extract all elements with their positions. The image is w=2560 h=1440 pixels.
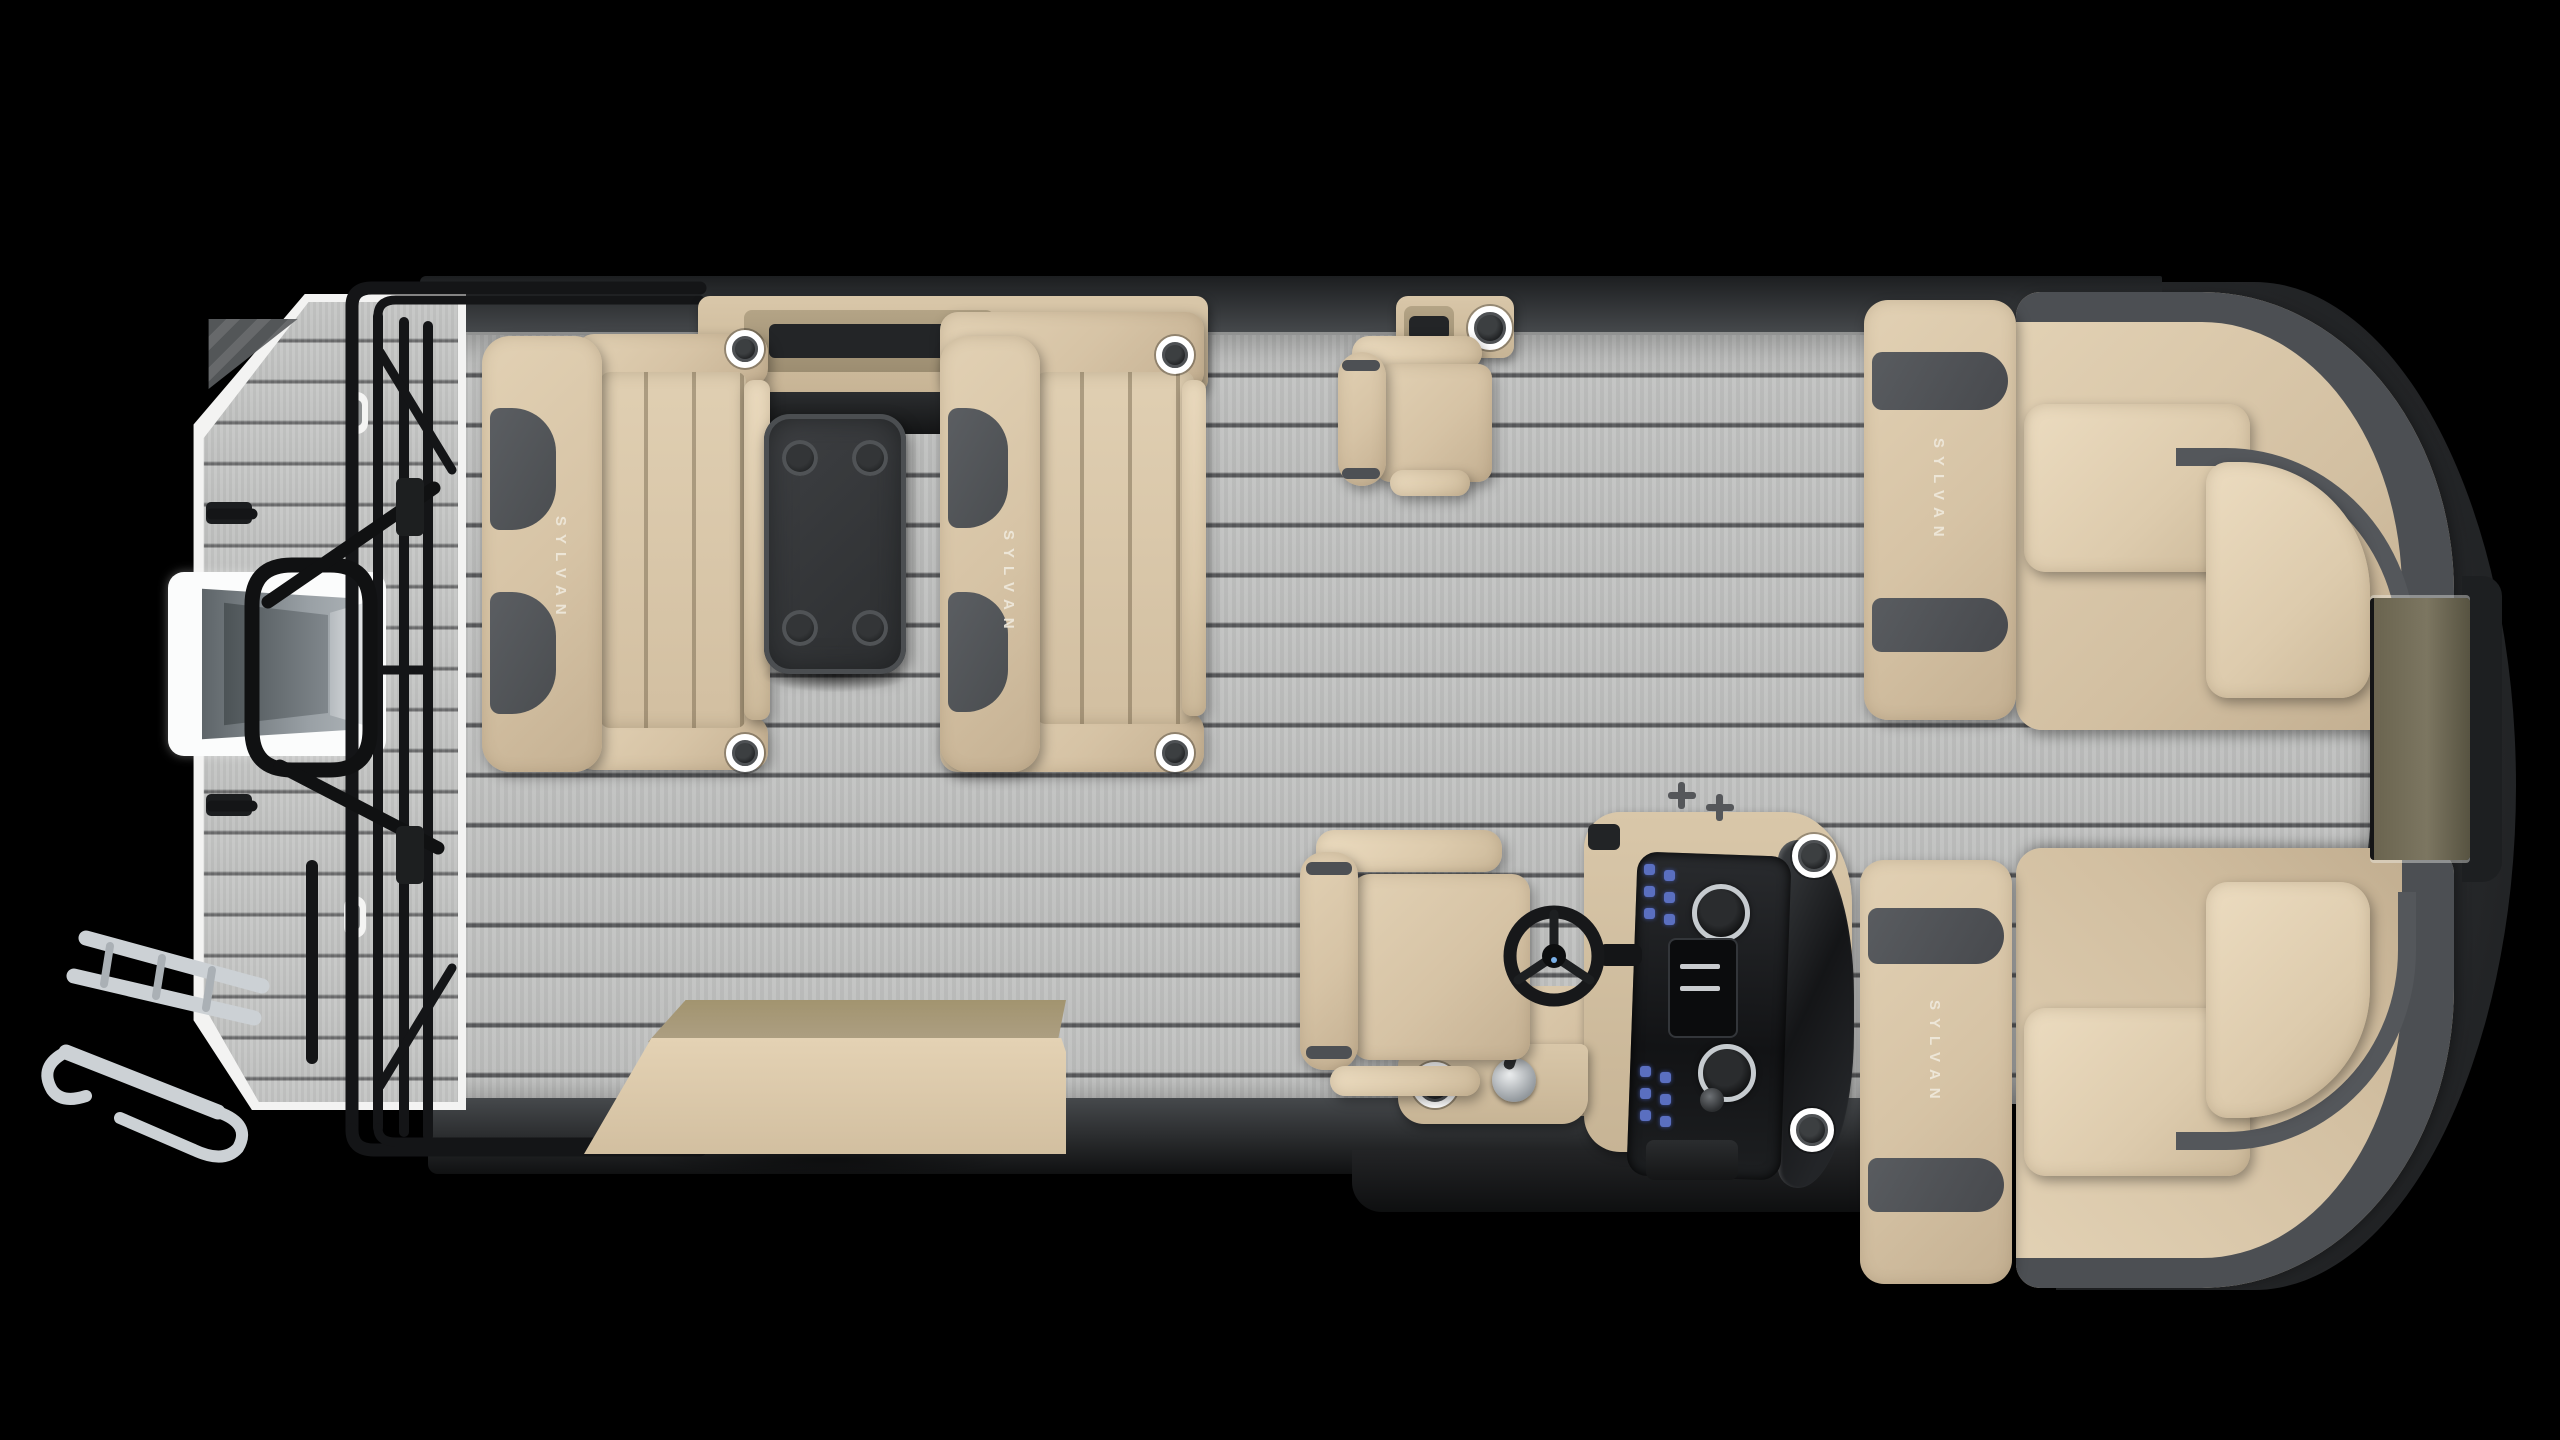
switch-panel-lower bbox=[1640, 1066, 1700, 1132]
armrest-accent bbox=[1872, 352, 2008, 410]
bow-port-lounge-logo: SYLVAN bbox=[1930, 438, 1947, 545]
dock-cleat-icon bbox=[1706, 804, 1734, 811]
bench-seat-cushions bbox=[600, 372, 746, 728]
dash-vent bbox=[1588, 824, 1620, 850]
cup-holder bbox=[1156, 734, 1194, 772]
chair-backrest bbox=[1338, 352, 1386, 486]
bow-starboard-lounge-logo: SYLVAN bbox=[1926, 1000, 1943, 1107]
backrest-accent bbox=[948, 592, 1008, 712]
chair-accent bbox=[1306, 1046, 1352, 1059]
stern-bench-logo: SYLVAN bbox=[552, 516, 569, 623]
dash-storage-recess bbox=[1646, 1140, 1738, 1180]
chair-footpad bbox=[1330, 1066, 1480, 1096]
armrest-accent bbox=[1868, 1158, 2004, 1212]
boat-floorplan-scene: USB SYLVAN SYLVAN bbox=[0, 0, 2560, 1440]
backrest-accent bbox=[490, 408, 556, 530]
bow-gate bbox=[2370, 598, 2470, 860]
helm-display-screen bbox=[1668, 938, 1738, 1038]
switch-panel-upper bbox=[1644, 864, 1704, 930]
chair-seat bbox=[1376, 364, 1492, 482]
cup-holder bbox=[726, 330, 764, 368]
storage-bench bbox=[584, 1038, 1066, 1154]
table-cup-holder bbox=[782, 440, 818, 476]
steering-wheel bbox=[1498, 902, 1648, 1012]
backrest-accent bbox=[490, 592, 556, 714]
backrest-accent bbox=[948, 408, 1008, 528]
boarding-ladder bbox=[47, 938, 262, 1157]
armrest-accent bbox=[1868, 908, 2004, 964]
dock-cleat-icon bbox=[1668, 792, 1696, 799]
cup-holder bbox=[1156, 336, 1194, 374]
chair-accent bbox=[1342, 468, 1380, 479]
storage-bench-top bbox=[648, 1000, 1066, 1042]
captain-chair-backrest bbox=[1300, 852, 1358, 1070]
cup-holder bbox=[1792, 834, 1836, 878]
chair-accent bbox=[1342, 360, 1380, 371]
armrest-accent bbox=[1872, 598, 2008, 652]
cup-holder bbox=[1790, 1108, 1834, 1152]
midship-bench-logo: SYLVAN bbox=[1000, 530, 1017, 637]
cup-holder bbox=[726, 734, 764, 772]
removable-table bbox=[764, 414, 906, 674]
table-cup-holder bbox=[852, 440, 888, 476]
table-cup-holder bbox=[852, 610, 888, 646]
chair-accent bbox=[1306, 862, 1352, 875]
bench-seat-cushions bbox=[1036, 372, 1194, 724]
dash-knob bbox=[1700, 1088, 1724, 1112]
bench-front-lip bbox=[1182, 380, 1206, 716]
table-cup-holder bbox=[782, 610, 818, 646]
chair-footpad bbox=[1390, 470, 1470, 496]
